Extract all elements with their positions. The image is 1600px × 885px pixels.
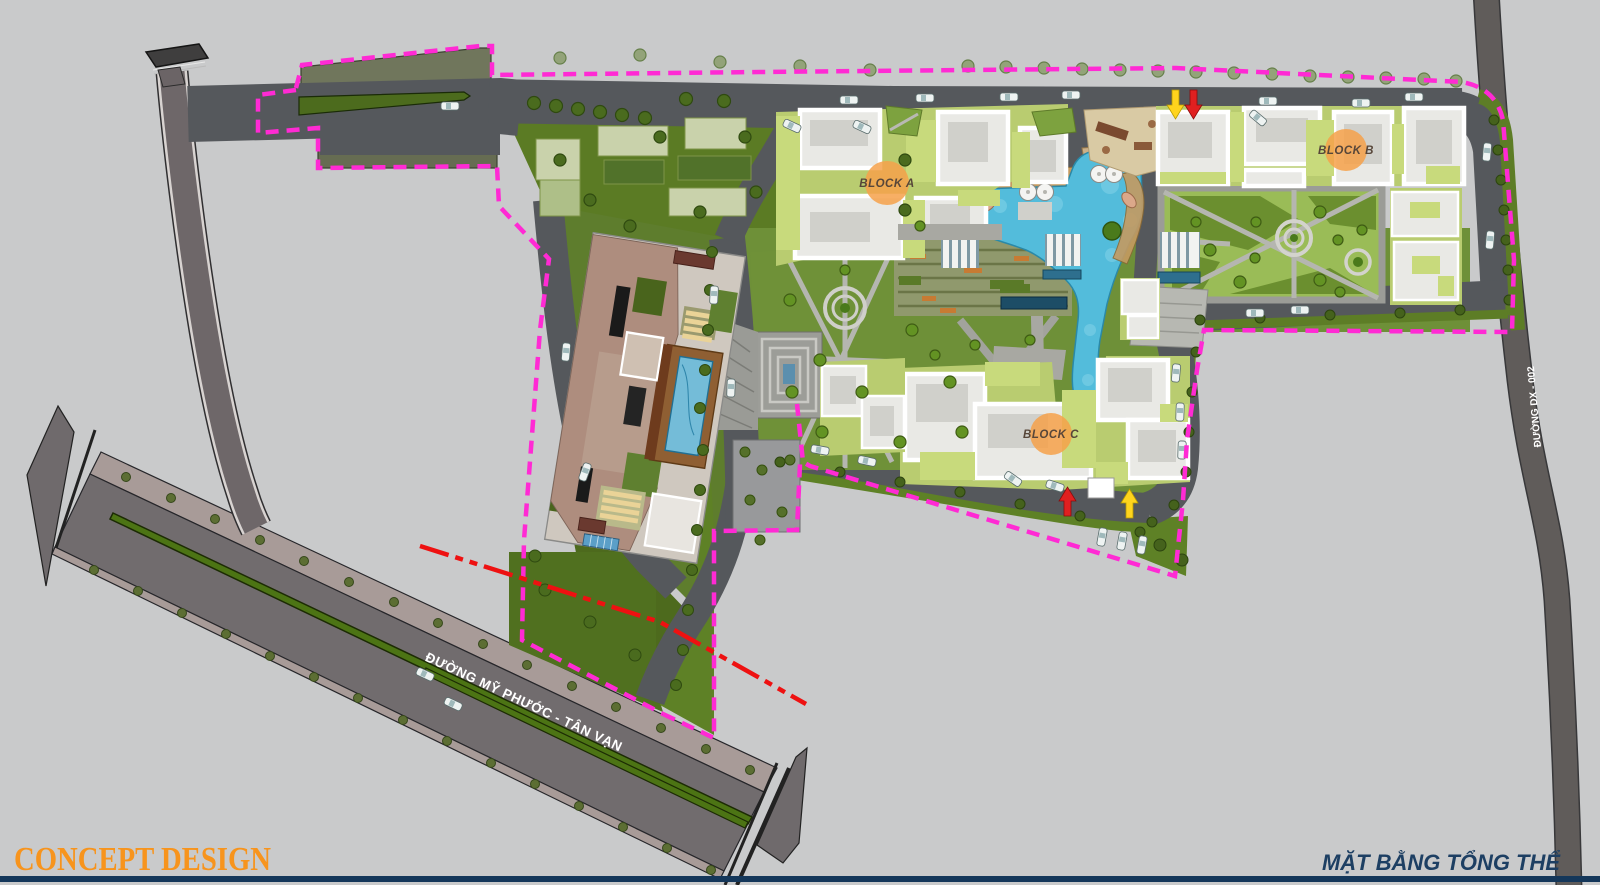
svg-text:BLOCK C: BLOCK C — [1023, 429, 1079, 441]
svg-text:BLOCK B: BLOCK B — [1318, 145, 1374, 157]
svg-text:BLOCK A: BLOCK A — [859, 178, 914, 190]
svg-text:MẶT BẰNG TỔNG THỂ: MẶT BẰNG TỔNG THỂ — [1322, 850, 1561, 875]
svg-text:CONCEPT DESIGN: CONCEPT DESIGN — [14, 841, 271, 878]
